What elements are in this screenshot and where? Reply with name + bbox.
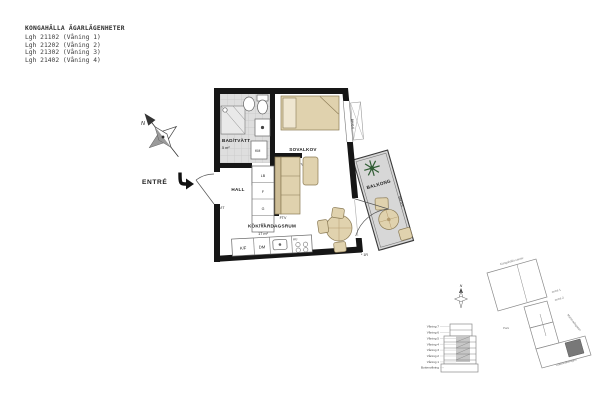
entry-door bbox=[196, 174, 214, 204]
sofa-back bbox=[275, 157, 281, 214]
dining-chair-top bbox=[331, 207, 344, 219]
site-key: N Våning 7 Våning 6 Våning 5 Våning 4 V bbox=[421, 256, 591, 372]
wall-bathroom-right bbox=[270, 94, 275, 166]
sink bbox=[244, 97, 255, 111]
electrical-cabinet-label: EL/IT bbox=[216, 206, 225, 210]
floor-label: Våning 2 bbox=[427, 354, 439, 358]
site-plan: Kongahälla center entré 1 entré 2 Markna… bbox=[487, 256, 591, 368]
hall-label: HALL bbox=[231, 187, 244, 192]
entry-label: ENTRÉ bbox=[142, 177, 167, 186]
balcony: BALKONG BH 0.5 bbox=[353, 150, 414, 250]
floor-label: Våning 1 bbox=[427, 360, 439, 364]
shower-head-icon bbox=[223, 108, 227, 112]
dining-chair-left bbox=[317, 219, 329, 233]
kitchen-living-area: 17 m² bbox=[258, 232, 268, 236]
site-park-label: Park bbox=[503, 326, 510, 330]
wall-top bbox=[214, 88, 348, 94]
sofa bbox=[281, 157, 300, 214]
hob-label: KU bbox=[293, 237, 297, 241]
hall: HALL EL/IT LB F G ST bbox=[216, 166, 274, 232]
bathroom-area: 5 m² bbox=[222, 146, 230, 150]
building-elevation: Våning 7 Våning 6 Våning 5 Våning 4 Våni… bbox=[421, 324, 478, 372]
floor-label: Våning 7 bbox=[427, 325, 439, 329]
entry-arrow-icon bbox=[180, 173, 187, 185]
kitchen-living-label: KÖK/VARDAGSRUM bbox=[248, 223, 296, 229]
floor-label: Bottenvåning bbox=[421, 366, 439, 370]
wall-left-upper bbox=[214, 94, 220, 172]
compass-rose-icon: N bbox=[131, 103, 192, 167]
rail-height-label-upper: BH 0.6 bbox=[350, 119, 355, 130]
bathroom: KM BAD/TVÄTT 5 m² bbox=[221, 95, 270, 159]
bed-pillow bbox=[283, 98, 296, 128]
floor-label: Våning 4 bbox=[427, 342, 439, 346]
site-entrance-label-1: entré 1 bbox=[551, 288, 561, 294]
closet-label-3: G bbox=[262, 207, 265, 211]
floorplan-page: KONGAHÄLLA ÄGARLÄGENHETER Lgh 21102 (Vån… bbox=[0, 0, 600, 400]
apartment-plan: BALKONG BH 0.5 bbox=[131, 88, 414, 262]
dining-chair-bottom bbox=[334, 241, 347, 252]
floor-label: Våning 5 bbox=[427, 337, 439, 341]
entry-arrow-head bbox=[186, 179, 194, 190]
floor-label: Våning 3 bbox=[427, 348, 439, 352]
bathroom-label: BAD/TVÄTT bbox=[222, 137, 250, 143]
wall-right-a bbox=[342, 88, 349, 101]
floor-label: Våning 6 bbox=[427, 331, 439, 335]
north-label: N bbox=[141, 121, 145, 127]
reference-marker: * 1R bbox=[361, 253, 368, 257]
wall-bathroom-bottom bbox=[220, 163, 252, 168]
site-street-right-label: Marknadsgatan bbox=[566, 313, 582, 332]
armchair bbox=[303, 157, 318, 185]
site-compass-icon: N bbox=[455, 284, 468, 308]
washer-label: KM bbox=[255, 149, 260, 153]
site-entrance-label-2: entré 2 bbox=[554, 296, 564, 302]
wall-left-lower bbox=[214, 204, 220, 262]
fridge-freezer-label: K/F bbox=[240, 245, 247, 250]
toilet-bowl bbox=[258, 100, 268, 114]
dishwasher-label: DM bbox=[259, 244, 266, 249]
entry-marker: ENTRÉ bbox=[142, 173, 194, 190]
site-north-label: N bbox=[460, 284, 463, 288]
alcove-label: SOVALKOV bbox=[289, 147, 317, 152]
closet-label-1: LB bbox=[261, 174, 266, 178]
floor-plan-drawing: BALKONG BH 0.5 bbox=[0, 0, 600, 400]
tv-outlet-label-living: FTV bbox=[280, 216, 287, 220]
washing-machine-dot bbox=[261, 126, 264, 129]
